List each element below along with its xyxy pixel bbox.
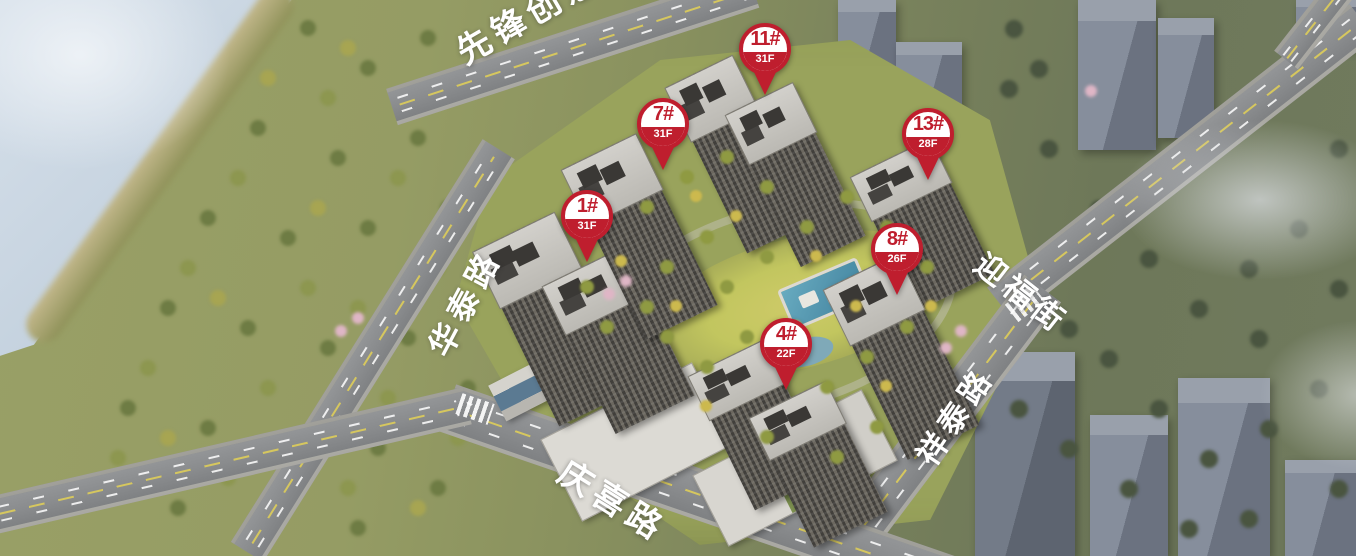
aerial-site-map: 先锋创意 华泰路 迎福街 祥泰路 庆喜路 1# 31F 4# 22F 7# 31… xyxy=(0,0,1356,556)
building-floors: 22F xyxy=(764,347,808,366)
building-pin-13[interactable]: 13# 28F xyxy=(902,108,954,184)
building-pin-1[interactable]: 1# 31F xyxy=(561,190,613,266)
building-number: 11# xyxy=(750,27,779,52)
context-building xyxy=(1178,378,1270,556)
building-pin-11[interactable]: 11# 31F xyxy=(739,23,791,99)
building-floors: 31F xyxy=(743,52,787,71)
fog-overlay xyxy=(1260,320,1356,470)
pin-circle: 7# 31F xyxy=(637,98,689,150)
blossom-trees-decoration xyxy=(0,0,12,12)
building-pin-7[interactable]: 7# 31F xyxy=(637,98,689,174)
pin-circle: 8# 26F xyxy=(871,223,923,275)
building-floors: 28F xyxy=(906,137,950,156)
pin-circle: 11# 31F xyxy=(739,23,791,75)
road-qingxi-west xyxy=(0,387,472,534)
context-building xyxy=(1078,0,1156,150)
context-building xyxy=(1090,415,1168,556)
building-number: 1# xyxy=(577,194,597,219)
pin-circle: 13# 28F xyxy=(902,108,954,160)
road-huatai xyxy=(231,139,515,556)
building-pin-8[interactable]: 8# 26F xyxy=(871,223,923,299)
building-pin-4[interactable]: 4# 22F xyxy=(760,318,812,394)
building-number: 7# xyxy=(653,102,673,127)
building-floors: 26F xyxy=(875,252,919,271)
context-building xyxy=(1285,460,1356,556)
pin-circle: 4# 22F xyxy=(760,318,812,370)
building-number: 13# xyxy=(913,112,943,137)
pin-circle: 1# 31F xyxy=(561,190,613,242)
building-number: 8# xyxy=(887,227,907,252)
building-number: 4# xyxy=(776,322,796,347)
building-floors: 31F xyxy=(565,219,609,238)
building-floors: 31F xyxy=(641,127,685,146)
